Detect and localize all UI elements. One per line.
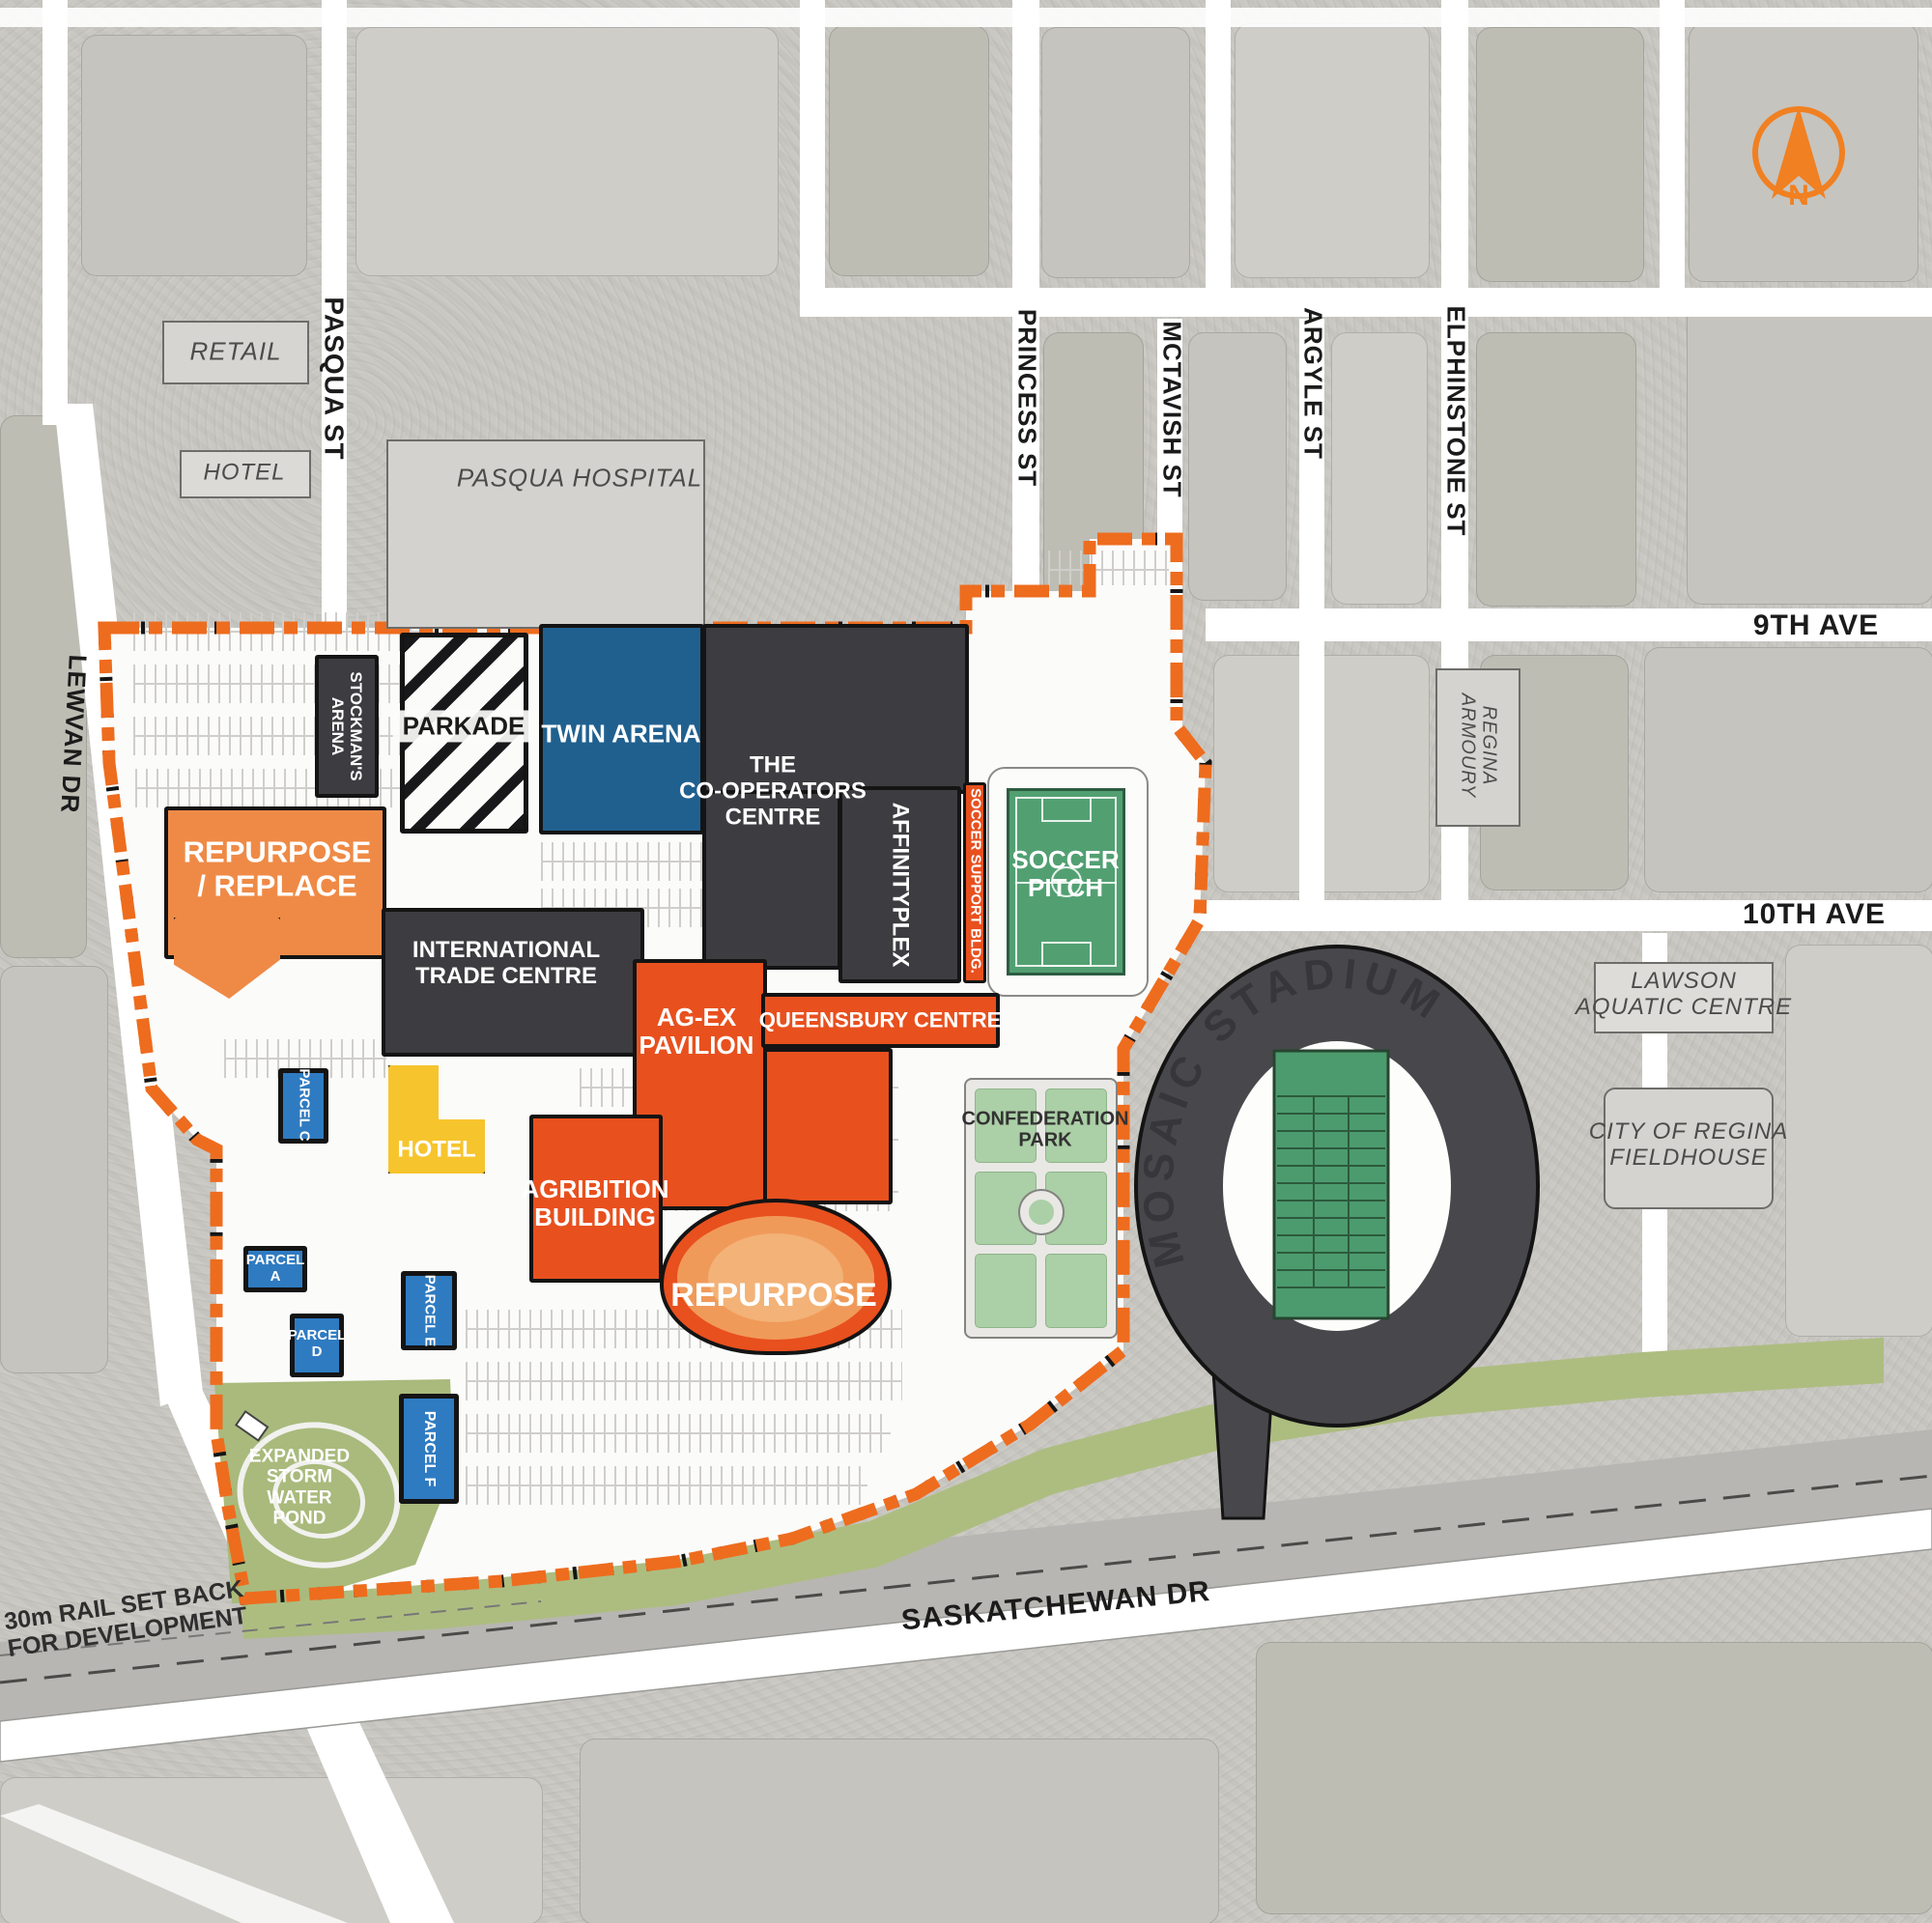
- pasqua-hospital-label: PASQUA HOSPITAL: [457, 464, 702, 492]
- mctavish-st-label: MCTAVISH ST: [1157, 321, 1185, 497]
- elphinstone-st-label: ELPHINSTONE ST: [1441, 306, 1469, 537]
- repurpose-replace-label: REPURPOSE/ REPLACE: [184, 835, 372, 902]
- fieldhouse-label: CITY OF REGINAFIELDHOUSE: [1589, 1119, 1788, 1172]
- site-plan-map: MOSAIC STADIUM N: [0, 0, 1932, 1923]
- park-cell: [975, 1254, 1037, 1328]
- soccer-support-label: SOCCER SUPPORT BLDG.: [967, 788, 983, 974]
- parcel-f-label: PARCEL F: [420, 1411, 438, 1487]
- soccer-goal-box: [1041, 942, 1092, 967]
- parcel-d-label: PARCELD: [288, 1328, 347, 1361]
- stockmans-arena-label: STOCKMAN'SARENA: [328, 671, 365, 780]
- stadium-field: [1274, 1051, 1388, 1318]
- queensbury-label: QUEENSBURY CENTRE: [759, 1009, 1002, 1033]
- compass-n-label: N: [1788, 180, 1809, 212]
- twin-arena-label: TWIN ARENA: [541, 720, 700, 748]
- confederation-park-label: CONFEDERATIONPARK: [962, 1109, 1129, 1152]
- park-cell: [1045, 1254, 1107, 1328]
- tenth-ave-label: 10TH AVE: [1743, 898, 1886, 931]
- regina-armoury-label: REGINAARMOURY: [1457, 693, 1500, 798]
- lawson-aquatic-label: LAWSONAQUATIC CENTRE: [1576, 969, 1792, 1021]
- repurpose-arena-label: REPURPOSE: [670, 1277, 877, 1314]
- park-plaza-circle: [1020, 1191, 1063, 1233]
- cooperators-label: THECO-OPERATORSCENTRE: [679, 753, 867, 832]
- parcel-a-label: PARCELA: [246, 1253, 305, 1286]
- agex-pavilion-label: AG-EXPAVILION: [639, 1004, 754, 1060]
- parcel-c-label: PARCEL C: [296, 1068, 312, 1141]
- hotel-north-label: HOTEL: [203, 461, 285, 487]
- storm-pond-label: EXPANDEDSTORMWATERPOND: [249, 1446, 350, 1528]
- princess-st-label: PRINCESS ST: [1012, 309, 1040, 487]
- north-compass: N: [1755, 106, 1842, 212]
- pasqua-st-label: PASQUA ST: [319, 297, 349, 460]
- soccer-pitch-label: SOCCERPITCH: [1011, 846, 1119, 902]
- retail-label: RETAIL: [189, 337, 281, 365]
- trade-centre-label: INTERNATIONALTRADE CENTRE: [412, 938, 600, 990]
- affinityplex-label: AFFINITYPLEX: [887, 803, 913, 968]
- soccer-goal-box: [1041, 797, 1092, 822]
- agribition-label: AGRIBITIONBUILDING: [521, 1175, 668, 1231]
- ninth-ave-label: 9TH AVE: [1753, 609, 1879, 642]
- argyle-st-label: ARGYLE ST: [1298, 307, 1326, 460]
- parkade-label: PARKADE: [393, 710, 535, 742]
- hotel-label: HOTEL: [397, 1138, 475, 1164]
- agex-connector-building: [763, 1048, 893, 1204]
- parcel-e-label: PARCEL E: [421, 1275, 438, 1346]
